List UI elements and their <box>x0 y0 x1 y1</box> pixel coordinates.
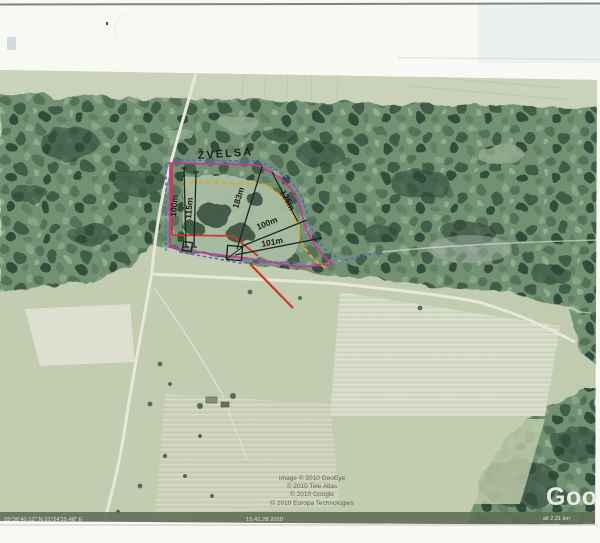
satellite-photo: 100m 115m 183m 125m 100m 101m ŽVELSA Ima… <box>0 64 600 526</box>
photo-grain <box>0 64 600 526</box>
paper-edge <box>478 5 600 63</box>
scan-speck <box>106 22 108 25</box>
photo-bottom-shadow <box>0 524 598 526</box>
scanned-page: 100m 115m 183m 125m 100m 101m ŽVELSA Ima… <box>0 0 600 543</box>
scan-smudge <box>7 37 16 50</box>
